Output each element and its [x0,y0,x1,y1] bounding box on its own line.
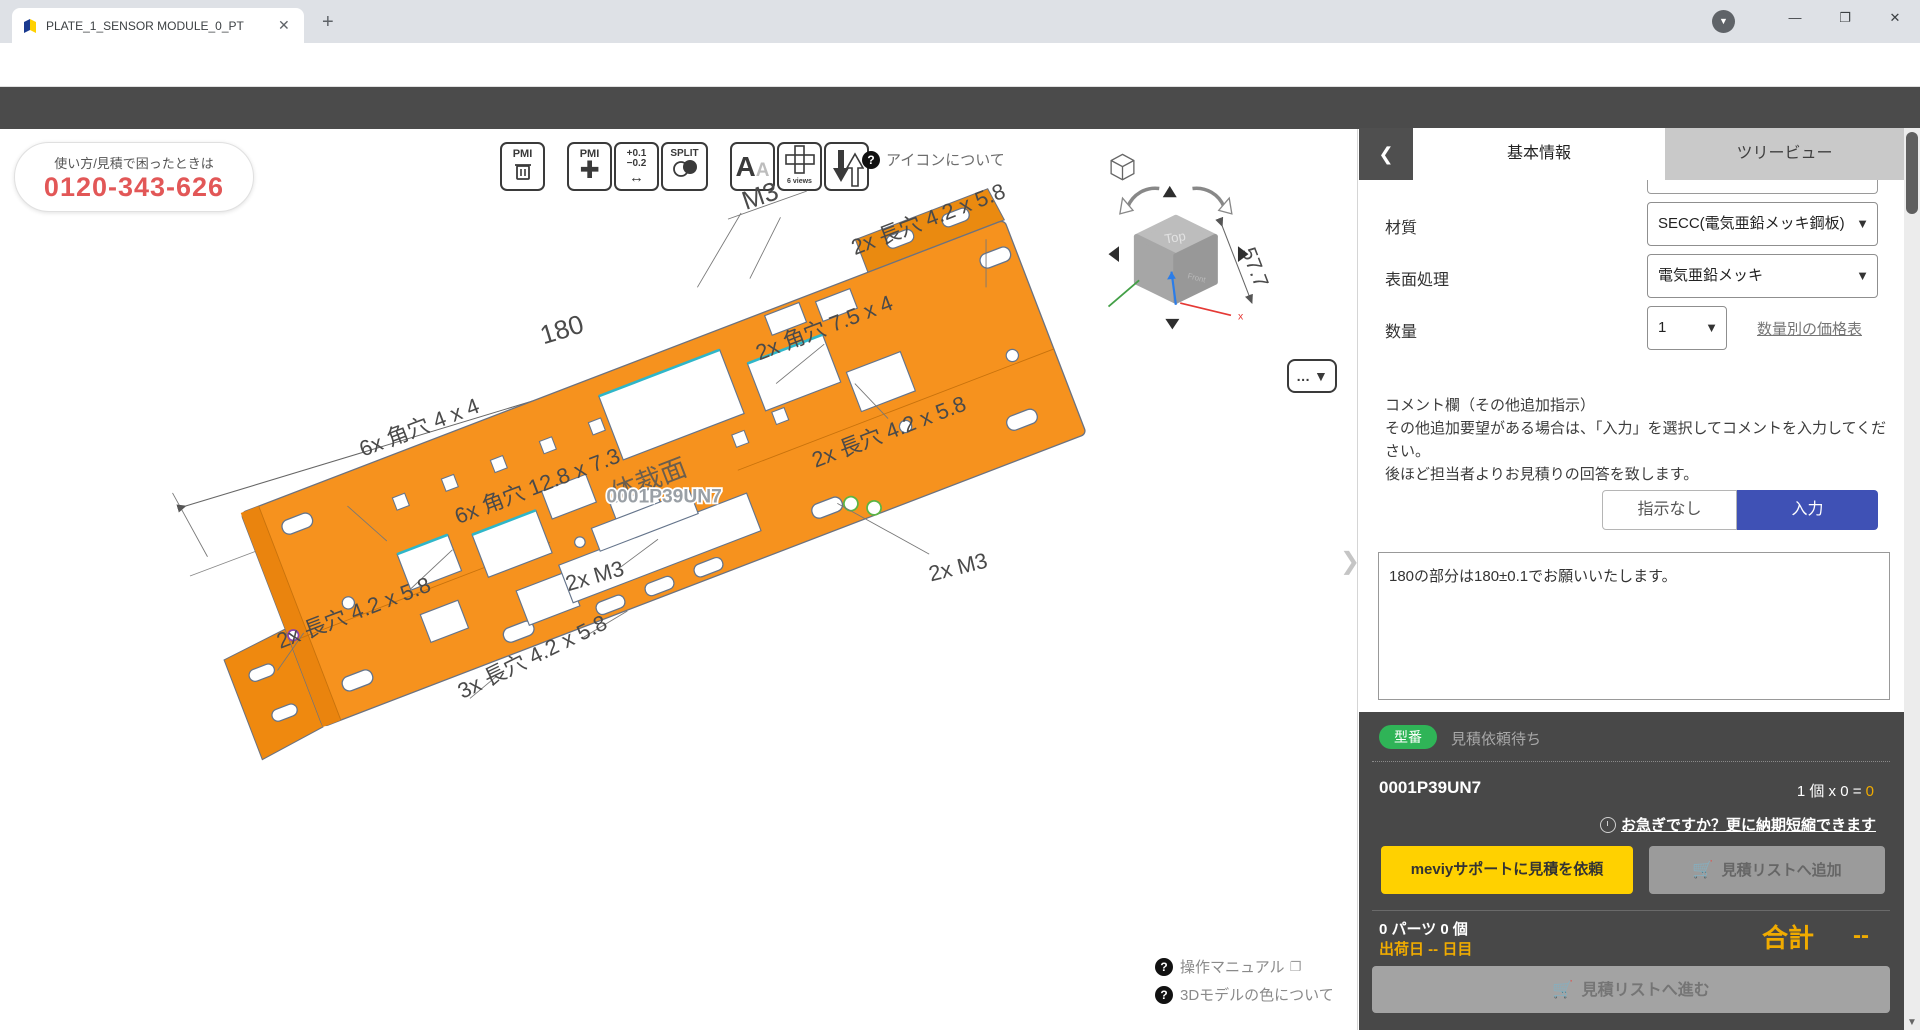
model-color-link[interactable]: ? 3Dモデルの色について [1155,984,1334,1005]
quote-status: 見積依頼待ち [1451,728,1541,749]
panel-scrollbar[interactable]: ▼ [1904,128,1920,1030]
material-label: 材質 [1385,214,1417,238]
comment-body2: 後ほど担当者よりお見積りの回答を致します。 [1385,463,1893,486]
model-number-badge: 型番 [1379,725,1437,749]
quantity-select[interactable]: 1 ▼ [1647,306,1727,350]
maximize-button[interactable]: ❐ [1822,0,1868,36]
add-to-quote-list-button[interactable]: 🛒見積リストへ追加 [1649,846,1885,894]
quantity-expression: 1 個 x 0 = 0 [1797,780,1874,801]
toggle-input[interactable]: 入力 [1737,490,1878,530]
part-info-panel: ❮ 基本情報 ツリービュー 材質 SECC(電気亜鉛メッキ鋼板) ▼ 表面処理 … [1359,128,1904,1030]
svg-text:180: 180 [536,309,587,350]
browser-tab[interactable]: PLATE_1_SENSOR MODULE_0_PT ✕ [12,8,304,43]
cart-plus-icon: 🛒 [1692,846,1713,894]
parts-count: 0 パーツ 0 個 [1379,918,1468,939]
tab-basic-info[interactable]: 基本情報 [1413,128,1665,180]
chevron-down-icon: ▼ [1705,307,1718,349]
panel-back-button[interactable]: ❮ [1359,128,1413,180]
divider [1372,910,1890,911]
3d-viewer[interactable]: 使い方/見積で困ったときは 0120-343-626 PMI PMI ✚ +0.… [0,129,1358,1030]
more-options-button[interactable]: … ▼ [1287,359,1337,393]
tab-title: PLATE_1_SENSOR MODULE_0_PT [46,19,274,33]
surface-label: 表面処理 [1385,266,1449,290]
close-button[interactable]: ✕ [1872,0,1918,36]
browser-toolbar: ← → ⟳ ⌂ meviy.misumi-ec.com/ja-jp/app/fa… [0,43,1920,87]
chevron-down-icon: ▼ [1856,255,1869,297]
tab-tree-view[interactable]: ツリービュー [1665,128,1904,180]
breadcrumb: プロジェクト一覧 PTK PLATE_1_SENSOR MODULE_0_PTK… [0,87,1920,129]
question-icon: ? [1155,986,1173,1004]
dimension-57.7: 57.7 [1222,226,1272,303]
tab-search-icon[interactable]: ▼ [1712,10,1735,33]
new-tab-button[interactable]: + [322,11,334,34]
rush-delivery-link[interactable]: お急ぎですか？更に納期短縮できます [1600,814,1876,835]
comment-textarea[interactable]: 180の部分は180±0.1でお願いいたします。 [1378,552,1890,700]
isometric-cube-icon[interactable] [1111,154,1134,179]
external-link-icon: ❐ [1290,959,1302,975]
scrollbar-down-arrow[interactable]: ▼ [1904,1017,1920,1028]
quantity-price-link[interactable]: 数量別の価格表 [1757,318,1862,339]
cart-icon: 🛒 [1552,966,1573,1013]
total-value: -- [1853,922,1869,950]
proceed-to-quote-list-button[interactable]: 🛒見積リストへ進む [1372,966,1890,1013]
quantity-label: 数量 [1385,318,1417,342]
minimize-button[interactable]: — [1772,0,1818,36]
request-quote-button[interactable]: meviyサポートに見積を依頼 [1381,846,1633,894]
watermark-part-number: 0001P39UN7 [606,487,721,508]
surface-select[interactable]: 電気亜鉛メッキ ▼ [1647,254,1878,298]
material-select[interactable]: SECC(電気亜鉛メッキ鋼板) ▼ [1647,202,1878,246]
comment-body1: その他追加要望がある場合は、「入力」を選択してコメントを入力してください。 [1385,417,1893,463]
annotation: M3 [738,176,782,216]
tab-close-icon[interactable]: ✕ [278,17,290,34]
ship-date: 出荷日 -- 日目 [1379,938,1472,959]
clipped-field[interactable] [1647,180,1878,194]
dotted-divider [1372,761,1890,762]
chevron-down-icon: ▼ [1856,203,1869,245]
question-icon: ? [1155,958,1173,976]
toggle-no-instruction[interactable]: 指示なし [1602,490,1737,530]
panel-collapse-handle[interactable]: ❯ [1340,547,1358,576]
order-summary-panel: 型番 見積依頼待ち 0001P39UN7 1 個 x 0 = 0 お急ぎですか？… [1359,712,1904,1030]
total-label: 合計 [1762,918,1814,955]
favicon-meviy [22,18,38,34]
x-axis-label: x [1238,312,1244,323]
clock-icon [1600,817,1616,833]
quantity-total: 0 [1866,783,1874,800]
scrollbar-thumb[interactable] [1906,132,1918,214]
part-number: 0001P39UN7 [1379,778,1481,798]
manual-link[interactable]: ? 操作マニュアル ❐ [1155,956,1301,977]
browser-tab-strip: PLATE_1_SENSOR MODULE_0_PT ✕ + ▼ — ❐ ✕ [0,0,1920,43]
view-cube[interactable]: Top Front x [1109,217,1244,322]
model-canvas[interactable]: 180 [0,129,1358,1030]
comment-title: コメント欄（その他追加指示） [1385,394,1885,417]
annotation: 2x M3 [926,548,990,587]
